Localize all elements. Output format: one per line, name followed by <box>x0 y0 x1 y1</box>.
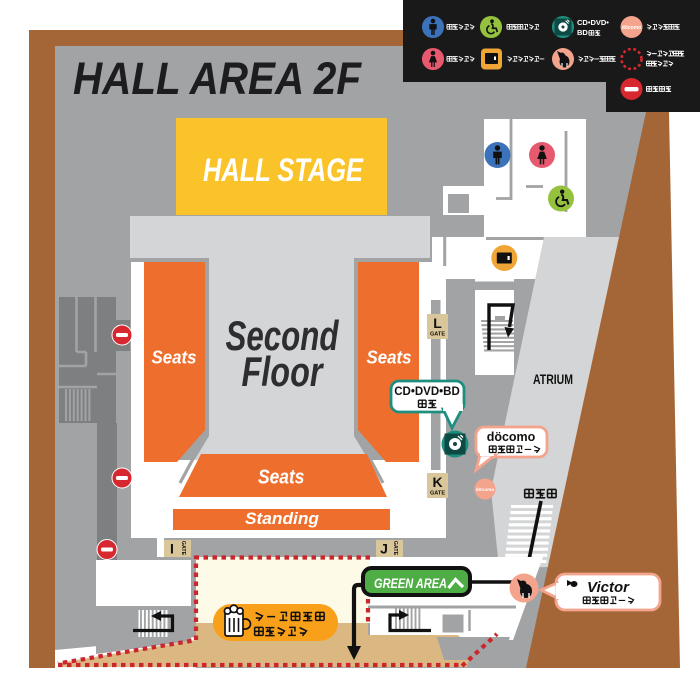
svg-text:GATE: GATE <box>180 541 186 556</box>
svg-text:Seats: Seats <box>367 348 412 368</box>
svg-text:GATE: GATE <box>392 541 398 556</box>
svg-text:HALL STAGE: HALL STAGE <box>203 152 364 188</box>
svg-text:Victor: Victor <box>587 579 630 596</box>
svg-text:GATE: GATE <box>430 332 445 338</box>
svg-text:CD•DVD•BD: CD•DVD•BD <box>394 386 460 398</box>
svg-text:döcomo: döcomo <box>487 430 536 444</box>
svg-text:CD•DVD•: CD•DVD• <box>577 18 609 27</box>
svg-text:Seats: Seats <box>258 467 305 489</box>
svg-text:K: K <box>432 474 442 490</box>
svg-text:GREEN AREA: GREEN AREA <box>374 576 447 591</box>
svg-text:HALL AREA 2F: HALL AREA 2F <box>73 53 362 104</box>
svg-text:BD: BD <box>577 28 588 37</box>
svg-text:I: I <box>170 541 174 557</box>
svg-text:döcomo: döcomo <box>476 487 495 493</box>
svg-text:ATRIUM: ATRIUM <box>533 372 573 387</box>
svg-text:Standing: Standing <box>245 510 319 528</box>
svg-text:J: J <box>380 541 388 557</box>
svg-text:GATE: GATE <box>430 491 445 497</box>
svg-text:L: L <box>433 315 442 331</box>
svg-text:Seats: Seats <box>152 348 197 368</box>
svg-text:döcomo: döcomo <box>622 25 641 31</box>
svg-text:Floor: Floor <box>242 348 325 395</box>
